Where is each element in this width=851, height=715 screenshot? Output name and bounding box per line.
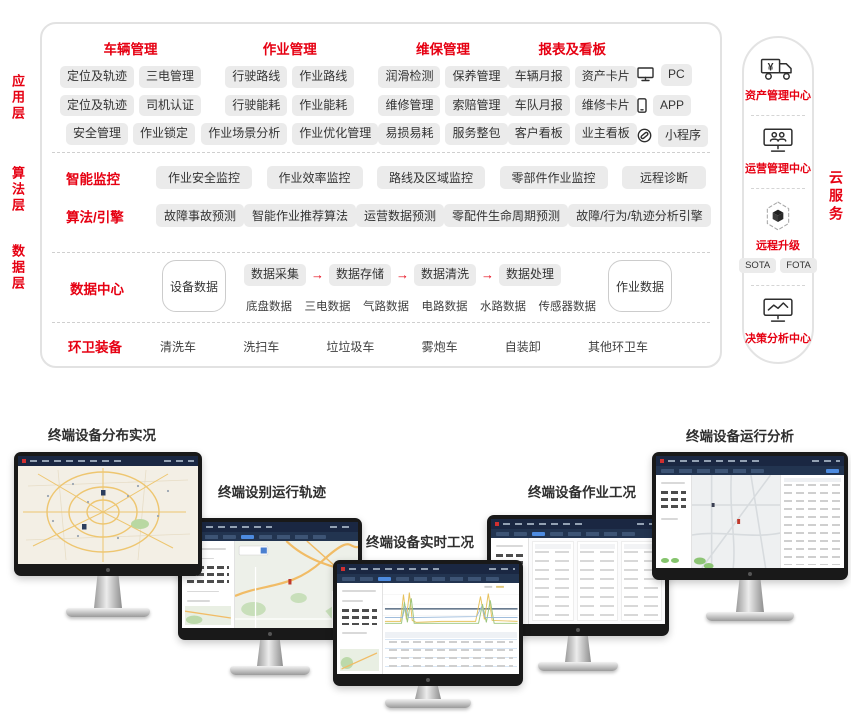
app-body [337,583,519,674]
monitor-caption-analysis: 终端设备运行分析 [686,425,794,445]
screen-trajectory [182,522,358,628]
channel-miniprogram: 小程序 [637,125,708,147]
layer-label-algorithm: 算法层 [8,166,27,214]
app-topbar [337,564,519,574]
data-source: 底盘数据 [246,298,292,314]
algorithm-row-engines: 算法/引擎 故障事故预测 智能作业推荐算法 运营数据预测 零配件生命周期预测 故… [66,204,706,227]
equipment-items: 清洗车 洗扫车 垃垃圾车 雾炮车 自装卸 其他环卫车 [160,338,648,355]
monitor-neck [565,636,591,662]
screen-bezel [333,560,523,686]
tab-bar [182,532,358,541]
feature-pill: 三电管理 [139,66,201,88]
cloud-section-asset: ¥ 资产管理中心 [745,56,811,103]
main-panel [383,583,520,674]
algorithm-row-monitoring: 智能监控 作业安全监控 作业效率监控 路线及区域监控 零部件作业监控 远程诊断 [66,166,706,189]
feature-pill: 车队月报 [508,95,570,117]
data-flow: 数据采集 → 数据存储 → 数据清洗 → 数据处理 [244,264,561,286]
algorithm-pill: 运营数据预测 [356,204,444,227]
algorithm-pill: 远程诊断 [622,166,706,189]
panel-line [661,482,685,484]
feature-pill: 定位及轨迹 [60,66,134,88]
monitor-realtime [333,560,523,708]
channel-label: PC [661,64,692,86]
tabs [496,532,527,536]
work-data-store: 作业数据 [608,260,672,312]
monitor-neck [415,686,441,699]
feature-pill: 车辆月报 [508,66,570,88]
monitor-chart-icon [762,297,794,325]
grid-column [532,541,573,621]
analysis-map [692,475,780,568]
group-title: 报表及看板 [538,38,606,58]
monitor-caption-realtime: 终端设备实时工况 [366,531,474,551]
algorithm-pill: 作业效率监控 [267,166,363,189]
screen-analysis [656,456,844,568]
monitor-caption-trajectory: 终端设别运行轨迹 [218,481,326,501]
tabs [550,532,635,536]
active-tab [378,577,391,581]
channel-label: 小程序 [658,125,708,147]
stats-header [784,478,841,482]
mini-map [340,649,379,671]
menu-items [503,523,587,525]
group-title: 维保管理 [416,38,470,58]
app-logo [22,459,26,463]
feature-pill: 客户看板 [508,123,570,145]
work-condition-grid [529,538,665,624]
algorithm-pill: 零部件作业监控 [500,166,608,189]
equipment-item: 其他环卫车 [588,338,648,355]
flow-step: 数据清洗 [414,264,476,286]
monitor-caption-operation: 终端设备作业工况 [528,481,636,501]
column-rows [535,551,570,618]
feature-pill: 保养管理 [445,66,507,88]
layer-label-data: 数据层 [8,244,27,292]
device-data-store: 设备数据 [162,260,226,312]
panel-line [496,545,523,547]
equipment-item: 清洗车 [160,338,196,355]
app-group-maintenance: 维保管理 润滑检测保养管理 维修管理索赔管理 易损易耗服务整包 [378,38,507,152]
group-title: 作业管理 [263,38,317,58]
feature-pill: 资产卡片 [575,66,637,88]
layer-label-application: 应用层 [8,74,27,122]
feature-pill: 作业锁定 [133,123,195,145]
divider [751,285,805,286]
screen-bezel [652,452,848,580]
cloud-section-label: 决策分析中心 [745,330,811,346]
vehicle-list [342,609,377,625]
app-group-reports: 报表及看板 车辆月报资产卡片 车队月报维修卡片 客户看板业主看板 [508,38,637,152]
flow-step: 数据存储 [329,264,391,286]
divider [52,252,710,253]
flow-step: 数据采集 [244,264,306,286]
divider [52,152,710,153]
architecture-frame: 车辆管理 定位及轨迹三电管理 定位及轨迹司机认证 安全管理作业锁定 作业管理 行… [40,22,722,368]
panel-line [342,600,363,602]
monitor-base [538,662,618,671]
cloud-section-label: 资产管理中心 [745,87,811,103]
cloud-section-label: 远程升级 [756,237,800,253]
map-blobs [661,558,686,563]
feature-pill: 润滑检测 [378,66,440,88]
algorithm-pills: 作业安全监控 作业效率监控 路线及区域监控 零部件作业监控 远程诊断 [156,166,706,189]
yen-glyph: ¥ [768,61,774,73]
screen-realtime [337,564,519,674]
fota-pill: FOTA [780,258,817,273]
divider [751,115,805,116]
group-title: 车辆管理 [104,38,158,58]
app-body [656,475,844,568]
truck-yen-icon: ¥ [760,56,796,82]
cloud-section-upgrade: 远程升级 SOTA FOTA [739,200,817,273]
app-topbar [182,522,358,532]
tabs [396,577,499,581]
vehicle-list [661,491,686,511]
feature-pill: 索赔管理 [445,95,507,117]
cloud-section-operation: 运营管理中心 [745,127,811,176]
feature-pill: 作业优化管理 [292,123,378,145]
channel-app: APP [637,95,708,117]
feature-pill: 维修管理 [378,95,440,117]
flow-step: 数据处理 [499,264,561,286]
panel-line [342,632,367,634]
equipment-item: 自装卸 [505,338,541,355]
application-layer: 车辆管理 定位及轨迹三电管理 定位及轨迹司机认证 安全管理作业锁定 作业管理 行… [60,38,708,152]
screen-bezel [14,452,202,576]
monitor-distribution [14,452,202,617]
monitor-base [230,666,310,675]
algorithm-pill: 零配件生命周期预测 [444,204,568,227]
feature-pill: 作业能耗 [292,95,354,117]
active-tab [532,532,545,536]
active-tab [826,469,839,473]
data-source: 三电数据 [305,298,351,314]
green-area [671,558,679,563]
algorithm-pill: 故障事故预测 [156,204,244,227]
data-table [385,639,518,672]
column-rows [580,551,615,618]
channel-label: APP [653,95,691,117]
monitor-analysis [652,452,848,621]
stats-panel [780,475,844,568]
app-group-vehicle: 车辆管理 定位及轨迹三电管理 定位及轨迹司机认证 安全管理作业锁定 [60,38,201,152]
feature-pill: 业主看板 [575,123,637,145]
panel-line [342,590,376,592]
app-group-operation: 作业管理 行驶路线作业路线 行驶能耗作业能耗 作业场景分析作业优化管理 [201,38,378,152]
pc-icon [637,67,655,82]
cube-hex-icon [763,200,793,232]
cloud-section-label: 运营管理中心 [745,160,811,176]
equipment-item: 雾炮车 [422,338,458,355]
user-menu [330,526,354,528]
cloud-section-decision: 决策分析中心 [745,297,811,346]
divider [751,188,805,189]
tabs [259,535,326,539]
feature-pill: 行驶路线 [225,66,287,88]
monitor-base [66,608,150,617]
active-tab [241,535,254,539]
data-source: 电路数据 [422,298,468,314]
tab-bar [491,529,665,538]
column-header [580,544,615,549]
flow-arrow-icon: → [311,267,324,282]
tabs [342,577,373,581]
page: 应用层 算法层 数据层 车辆管理 定位及轨迹三电管理 定位及轨迹司机认证 安全管… [0,0,851,715]
monitor-neck [94,576,122,608]
flow-arrow-icon: → [481,267,494,282]
user-menu [164,460,194,462]
equipment-row: 环卫装备 清洗车 洗扫车 垃垃圾车 雾炮车 自装卸 其他环卫车 [68,336,656,356]
monitor-neck [257,640,283,666]
data-source: 传感器数据 [539,298,597,314]
menu-items [30,460,126,462]
data-sources: 底盘数据 三电数据 气路数据 电路数据 水路数据 传感器数据 [246,298,596,314]
algorithm-pill: 故障/行为/轨迹分析引擎 [568,204,711,227]
stats-grid [784,484,841,565]
algorithm-pill: 智能作业推荐算法 [244,204,356,227]
feature-pill: 服务整包 [445,123,507,145]
bezel-logo [268,632,272,636]
cloud-panel: ¥ 资产管理中心 运营管理中心 远程升级 SOTA FOTA [742,36,814,364]
panel-line [661,518,678,520]
realtime-chart [383,583,520,631]
tab-bar [337,574,519,583]
green-area [661,558,669,563]
table-cells [389,641,514,670]
data-source: 气路数据 [363,298,409,314]
channel-pc: PC [637,64,708,86]
divider [52,322,710,323]
channels: PC APP 小程序 [637,64,708,152]
grid-column [577,541,618,621]
algorithm-row-label: 算法/引擎 [66,206,144,226]
side-panel [337,583,383,674]
equipment-item: 垃垃圾车 [326,338,374,355]
bezel-logo [748,572,752,576]
feature-pill: 作业场景分析 [201,123,287,145]
menu-items [349,568,439,570]
table-header [385,632,518,638]
flow-arrow-icon: → [396,267,409,282]
phone-icon [637,98,647,113]
side-panel [656,475,692,568]
tab-bar [656,466,844,475]
algorithm-pill: 作业安全监控 [156,166,252,189]
screen-distribution [18,456,198,564]
feature-pill: 安全管理 [66,123,128,145]
app-logo [660,459,664,463]
data-center-label: 数据中心 [70,278,124,298]
app-topbar [656,456,844,466]
monitor-neck [736,580,764,612]
monitor-base [706,612,794,621]
feature-pill: 易损易耗 [378,123,440,145]
menu-items [194,526,272,528]
algorithm-pill: 路线及区域监控 [377,166,485,189]
equipment-label: 环卫装备 [68,336,122,356]
column-header [535,544,570,549]
algorithm-pills: 故障事故预测 智能作业推荐算法 运营数据预测 零配件生命周期预测 故障/行为/轨… [156,204,711,227]
feature-pill: 维修卡片 [575,95,637,117]
feature-pill: 行驶能耗 [225,95,287,117]
feature-pill: 作业路线 [292,66,354,88]
equipment-item: 洗扫车 [243,338,279,355]
bezel-logo [106,568,110,572]
tabs [661,469,764,473]
monitor-users-icon [762,127,794,155]
feature-pill: 司机认证 [139,95,201,117]
distribution-map [18,466,198,564]
app-topbar [18,456,198,466]
app-topbar [491,519,665,529]
upgrade-pills: SOTA FOTA [739,258,817,273]
sota-pill: SOTA [739,258,776,273]
monitor-caption-distribution: 终端设备分布实况 [48,424,156,444]
user-menu [489,568,515,570]
algorithm-row-label: 智能监控 [66,168,144,188]
monitor-base [385,699,471,708]
app-logo [495,522,499,526]
feature-pill: 定位及轨迹 [60,95,134,117]
menu-items [668,460,764,462]
bezel-logo [426,678,430,682]
bezel-logo [576,628,580,632]
user-menu [812,460,840,462]
cloud-service-label: 云服务 [826,170,846,224]
data-source: 水路数据 [480,298,526,314]
app-logo [341,567,345,571]
link-icon [637,128,652,143]
app-body [182,541,358,628]
